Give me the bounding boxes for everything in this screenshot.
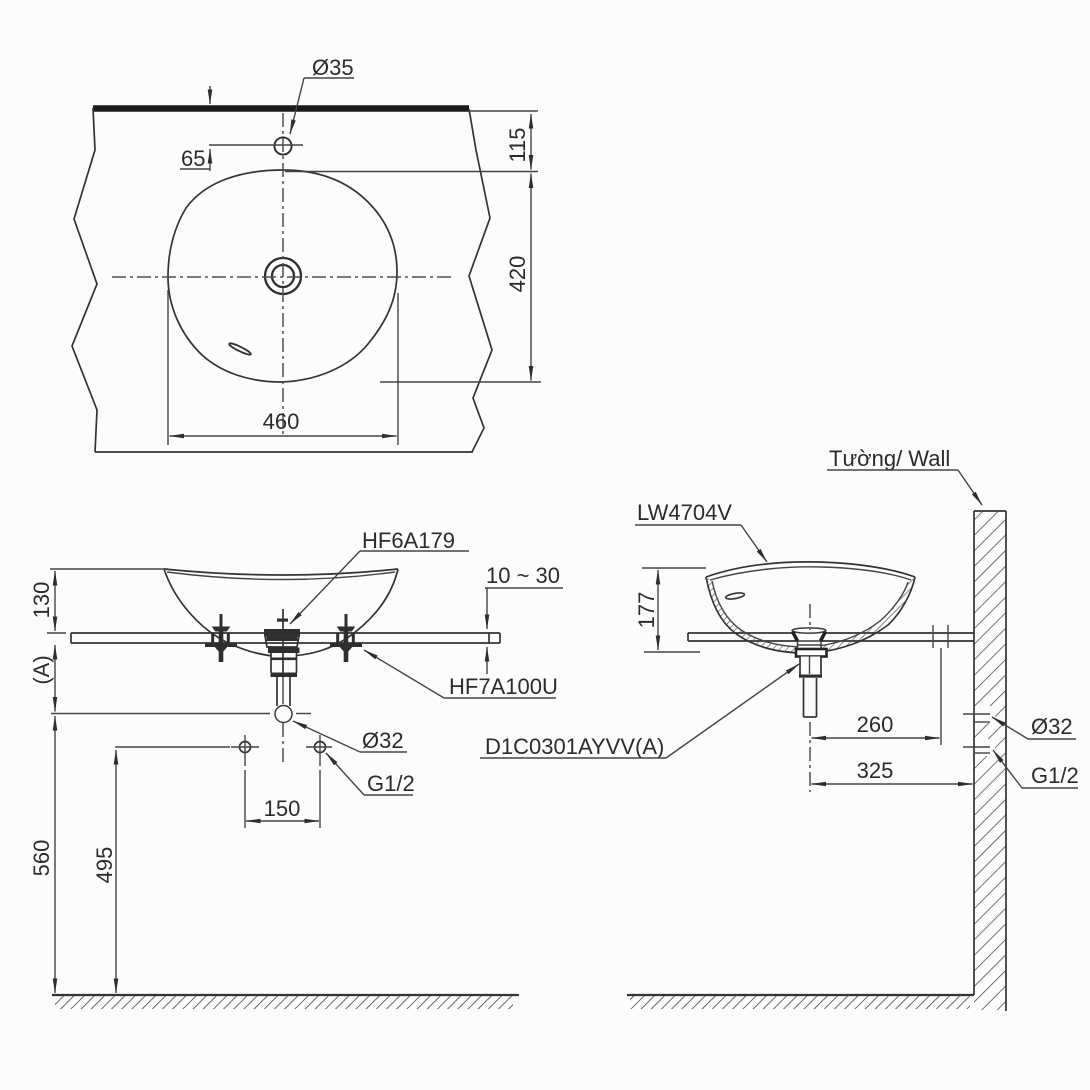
svg-text:495: 495 [92, 847, 117, 884]
svg-text:Ø32: Ø32 [1031, 714, 1073, 739]
svg-text:115: 115 [505, 127, 530, 162]
svg-text:150: 150 [264, 796, 301, 821]
svg-text:Ø32: Ø32 [362, 728, 404, 753]
svg-text:Ø35: Ø35 [312, 55, 354, 80]
svg-text:10 ~ 30: 10 ~ 30 [486, 563, 560, 588]
svg-text:177: 177 [634, 592, 659, 629]
svg-text:130: 130 [29, 582, 54, 619]
svg-text:260: 260 [857, 712, 894, 737]
svg-text:(A): (A) [29, 655, 54, 684]
svg-text:HF7A100U: HF7A100U [449, 674, 558, 699]
svg-text:LW4704V: LW4704V [637, 500, 732, 525]
svg-text:D1C0301AYVV(A): D1C0301AYVV(A) [485, 734, 664, 759]
svg-text:325: 325 [857, 758, 894, 783]
svg-text:420: 420 [505, 256, 530, 293]
svg-text:G1/2: G1/2 [367, 771, 415, 796]
svg-text:560: 560 [29, 840, 54, 877]
svg-text:65: 65 [181, 146, 205, 171]
svg-text:460: 460 [263, 409, 300, 434]
svg-text:Tường/ Wall: Tường/ Wall [829, 446, 950, 471]
svg-text:G1/2: G1/2 [1031, 763, 1079, 788]
svg-text:HF6A179: HF6A179 [362, 528, 455, 553]
